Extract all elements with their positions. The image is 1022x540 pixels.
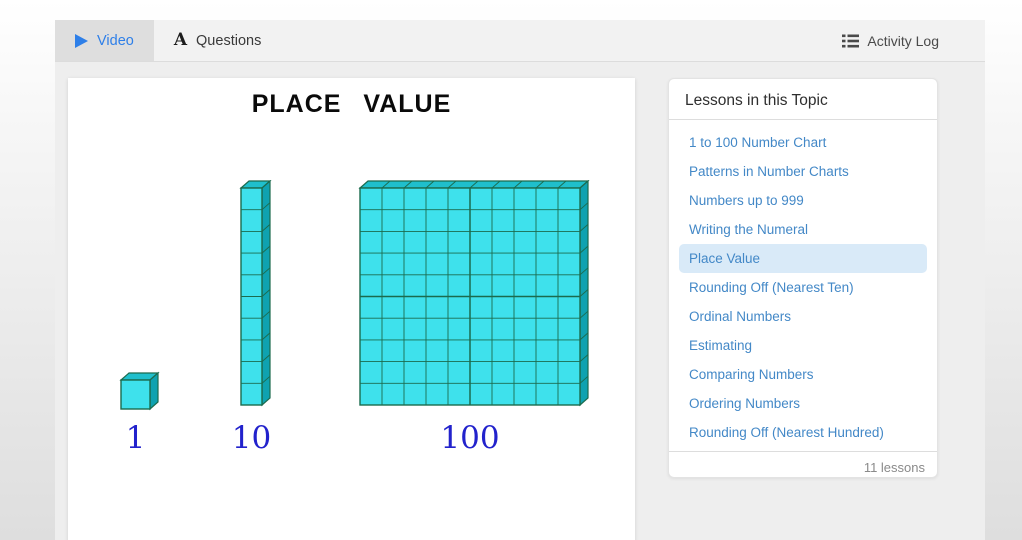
lesson-link[interactable]: Numbers up to 999 [679,186,927,215]
lesson-link[interactable]: Estimating [679,331,927,360]
tab-bar: Video A Questions Activity Log [55,20,985,62]
divider [669,119,937,120]
tab-video[interactable]: Video [55,20,154,61]
play-icon [75,34,88,48]
lesson-link[interactable]: Comparing Numbers [679,360,927,389]
lesson-link[interactable]: Ordinal Numbers [679,302,927,331]
activity-log-label: Activity Log [867,33,939,49]
tab-questions[interactable]: A Questions [154,20,282,61]
video-stage[interactable]: PLACE VALUE 110100 [68,78,635,540]
block-100: 100 [360,181,588,456]
lessons-panel: Lessons in this Topic 1 to 100 Number Ch… [668,78,938,478]
lesson-link[interactable]: Place Value [679,244,927,273]
lessons-panel-title: Lessons in this Topic [669,79,937,119]
tab-bar-spacer [281,20,826,61]
block-1: 1 [121,373,158,456]
lesson-link[interactable]: 1 to 100 Number Chart [679,128,927,157]
block-label-10: 10 [232,420,271,456]
block-label-1: 1 [126,420,146,456]
lesson-link[interactable]: Patterns in Number Charts [679,157,927,186]
tab-video-label: Video [97,33,134,49]
lesson-list: 1 to 100 Number ChartPatterns in Number … [669,128,937,447]
lesson-link[interactable]: Rounding Off (Nearest Hundred) [679,418,927,447]
video-slide-title: PLACE VALUE [68,90,635,119]
block-10: 10 [232,181,271,456]
block-label-100: 100 [440,420,499,456]
lesson-link[interactable]: Writing the Numeral [679,215,927,244]
lesson-link[interactable]: Rounding Off (Nearest Ten) [679,273,927,302]
tab-questions-label: Questions [196,33,261,49]
lesson-count: 11 lessons [669,452,937,475]
place-value-blocks: 110100 [68,180,635,490]
lesson-link[interactable]: Ordering Numbers [679,389,927,418]
letter-a-icon: A [174,32,187,49]
activity-log-button[interactable]: Activity Log [826,20,955,61]
list-icon [842,34,859,48]
